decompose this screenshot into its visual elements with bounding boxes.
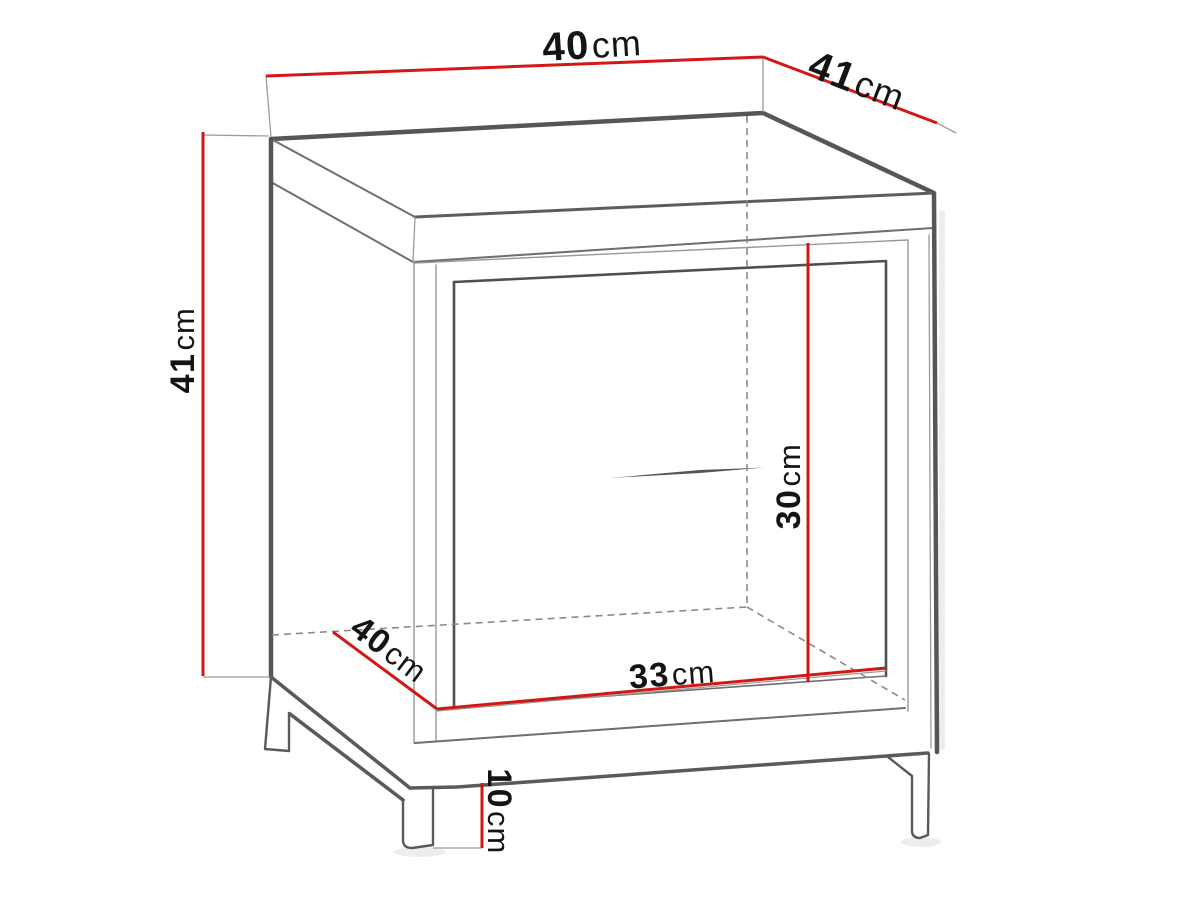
dim-label-interior-height: 30cm <box>772 443 806 529</box>
cabinet-line-art <box>0 0 1200 900</box>
shadows <box>394 210 945 857</box>
dim-value: 10 <box>482 768 516 809</box>
dim-unit: cm <box>168 307 199 350</box>
legs <box>265 677 929 848</box>
dim-unit: cm <box>774 443 805 486</box>
dim-label-leg-height: 10cm <box>482 768 516 854</box>
dim-unit: cm <box>483 811 514 854</box>
dim-value: 33 <box>628 658 671 695</box>
dim-value: 40 <box>541 25 591 68</box>
dim-unit: cm <box>671 656 717 690</box>
dim-value: 41 <box>166 353 200 394</box>
extension-lines <box>203 57 956 848</box>
dim-label-interior-width: 33cm <box>628 654 717 695</box>
dim-label-height: 41cm <box>166 307 200 393</box>
dim-value: 30 <box>772 489 806 530</box>
cabinet-outline <box>271 113 937 788</box>
dim-unit: cm <box>591 25 643 64</box>
dim-label-top-width: 40cm <box>541 22 643 68</box>
dimension-diagram: 40cm 41cm 41cm 30cm 40cm 33cm 10cm <box>0 0 1200 900</box>
